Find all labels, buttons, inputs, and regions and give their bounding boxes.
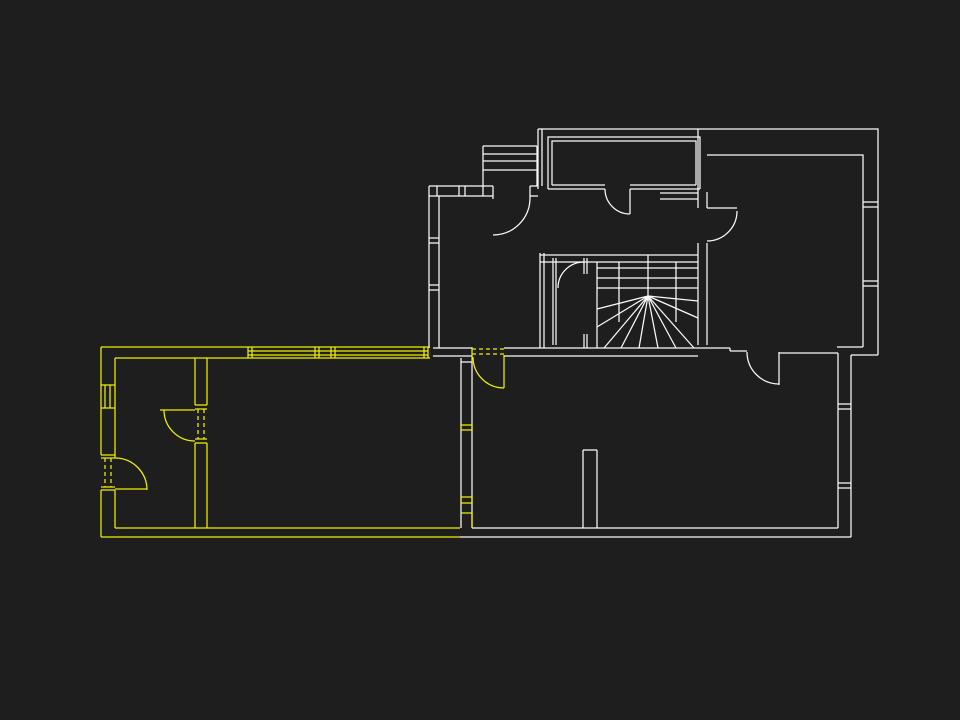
canvas-background <box>0 0 960 720</box>
slide: stávající dispozice <box>0 0 960 720</box>
floor-plan-canvas <box>0 0 960 720</box>
